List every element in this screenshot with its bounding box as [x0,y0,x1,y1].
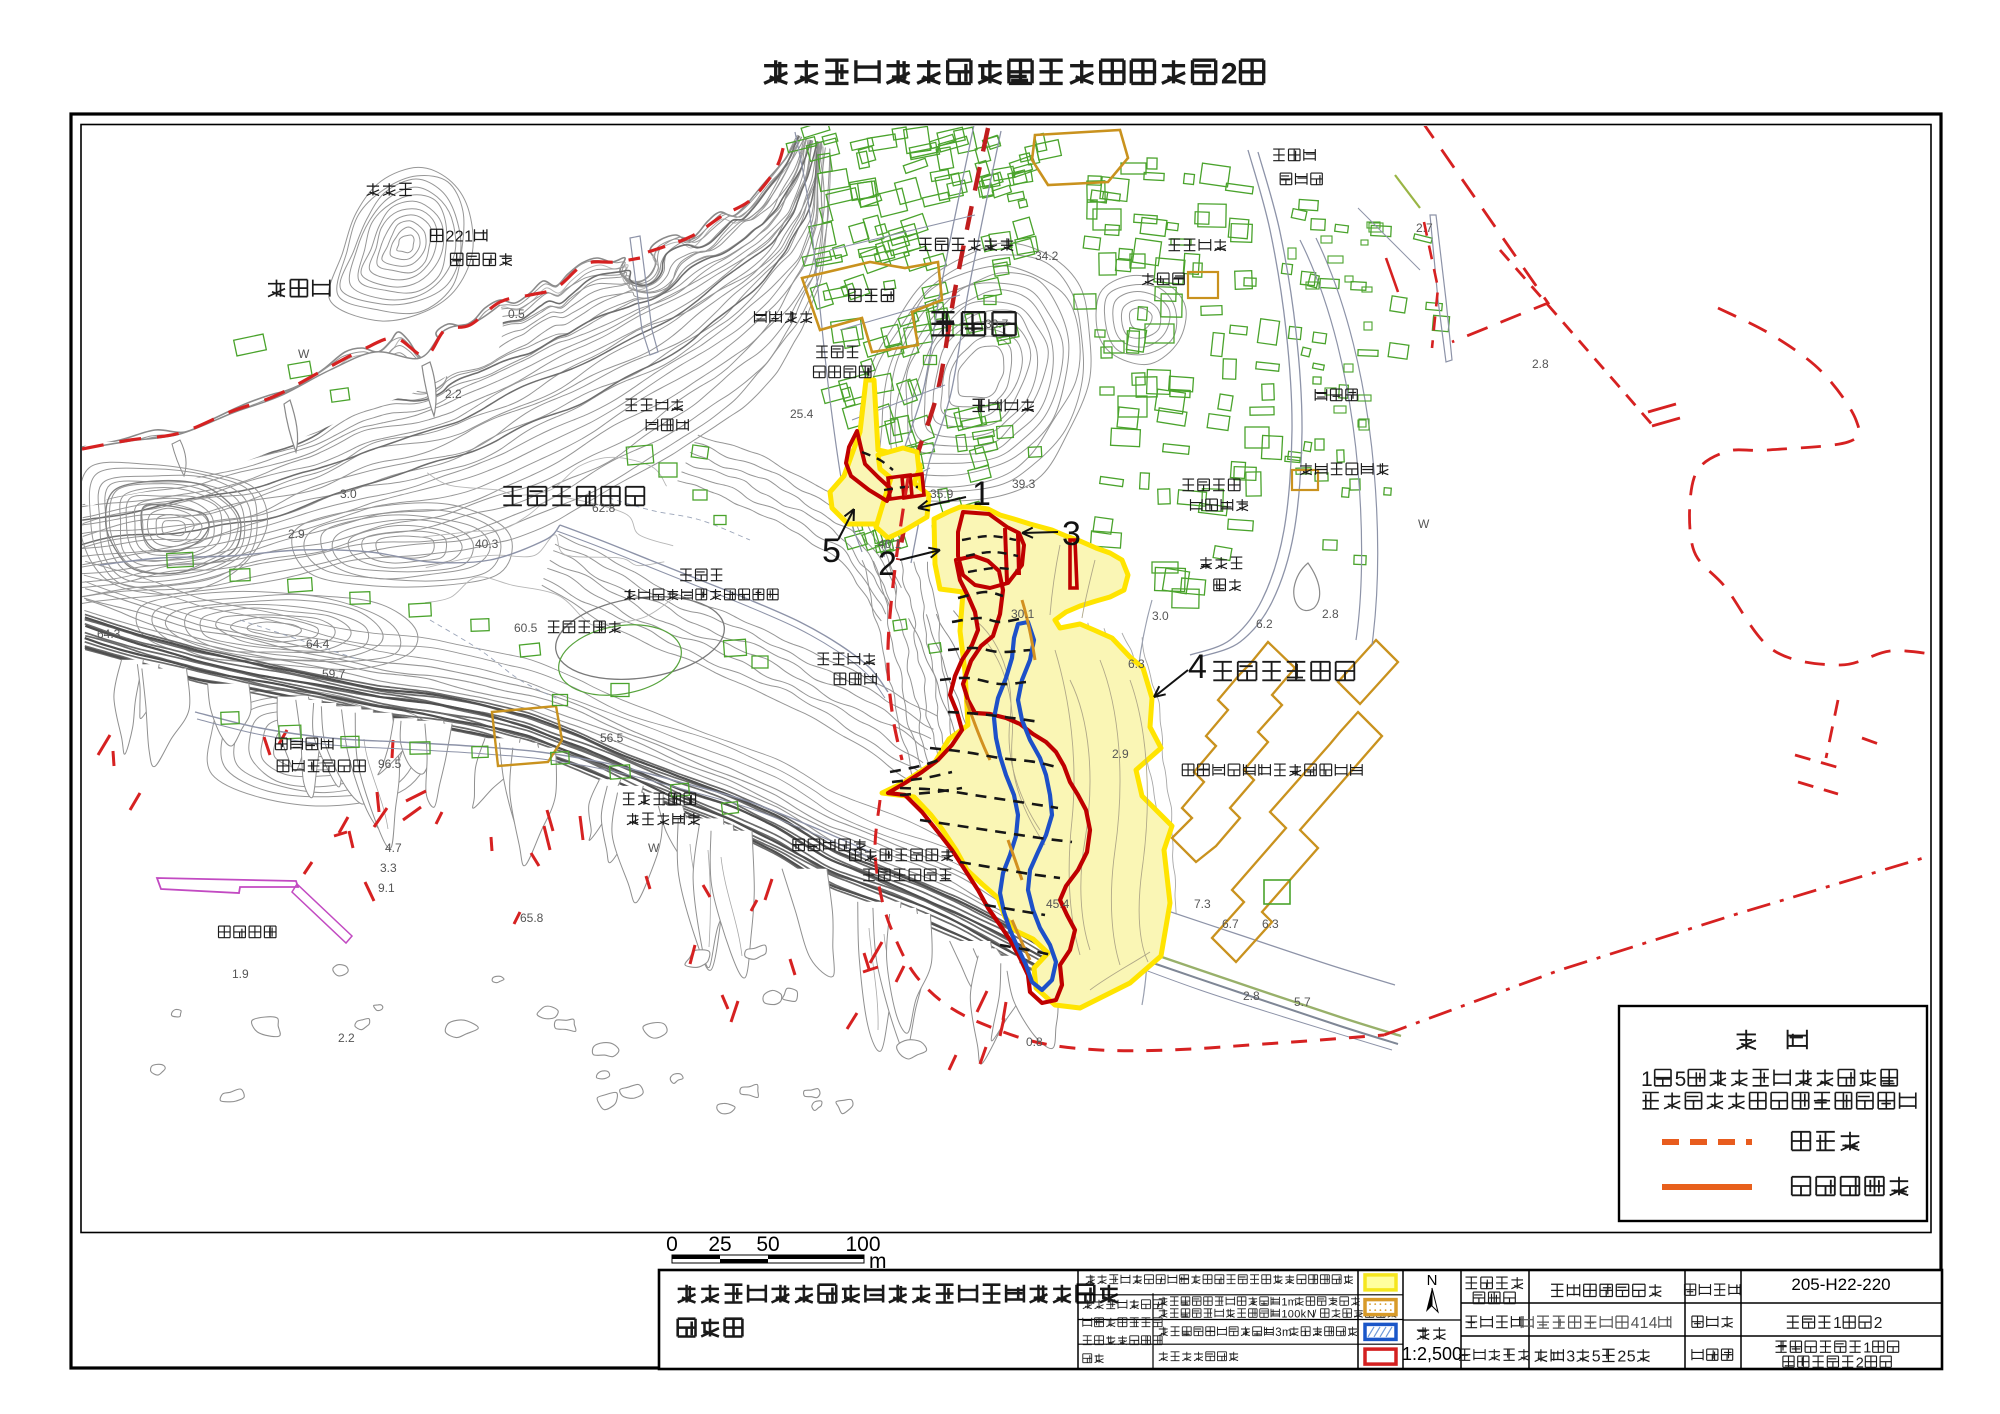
svg-text:6.3: 6.3 [1128,657,1145,671]
svg-text:6.7: 6.7 [1222,917,1239,931]
svg-text:3.0: 3.0 [1152,609,1169,623]
svg-text:0: 0 [1294,1308,1300,1320]
svg-text:2.9: 2.9 [1112,747,1129,761]
svg-text:64.3: 64.3 [97,627,121,641]
svg-text:5: 5 [1627,1349,1636,1366]
svg-text:1.9: 1.9 [232,967,249,981]
svg-text:2: 2 [446,229,455,246]
svg-text:205-H22-220: 205-H22-220 [1791,1275,1890,1294]
svg-text:W: W [298,347,310,361]
svg-text:2.8: 2.8 [1243,989,1260,1003]
svg-text:50: 50 [756,1233,779,1256]
svg-text:0.8: 0.8 [1026,1035,1043,1049]
svg-text:40.1: 40.1 [878,537,902,551]
svg-text:30.7: 30.7 [985,317,1009,331]
svg-text:64.4: 64.4 [306,637,330,651]
svg-text:4.7: 4.7 [385,841,402,855]
svg-text:1: 1 [464,229,473,246]
svg-text:2.9: 2.9 [288,527,305,541]
svg-text:4: 4 [1631,1315,1640,1332]
svg-text:1: 1 [972,475,991,513]
svg-text:N: N [1427,1272,1438,1289]
svg-text:60.5: 60.5 [514,621,538,635]
svg-text:1: 1 [1640,1315,1649,1332]
svg-text:1: 1 [1833,1315,1842,1332]
svg-text:1: 1 [1281,1296,1287,1308]
svg-text:34.2: 34.2 [1035,249,1059,263]
svg-text:62.8: 62.8 [592,501,616,515]
svg-text:3.3: 3.3 [380,861,397,875]
svg-text:96.5: 96.5 [378,757,402,771]
svg-text:5: 5 [1675,1068,1687,1091]
svg-text:40.3: 40.3 [475,537,499,551]
svg-text:k: k [1301,1308,1307,1320]
svg-text:3: 3 [1566,1349,1575,1366]
svg-text:2: 2 [1874,1315,1883,1332]
svg-text:45.4: 45.4 [1046,897,1070,911]
svg-text:4: 4 [1188,648,1207,686]
svg-text:1: 1 [1281,1308,1287,1320]
svg-text:5: 5 [1592,1349,1601,1366]
svg-text:6.2: 6.2 [1256,617,1273,631]
svg-text:2.2: 2.2 [445,387,462,401]
svg-text:m: m [1288,1296,1297,1308]
svg-text:2: 2 [1617,1349,1626,1366]
svg-text:0.5: 0.5 [508,307,525,321]
svg-text:56.5: 56.5 [600,731,624,745]
svg-text:7.3: 7.3 [1194,897,1211,911]
svg-text:W: W [1418,517,1430,531]
svg-text:3.0: 3.0 [340,487,357,501]
svg-text:2.2: 2.2 [338,1031,355,1045]
svg-text:1:2,500: 1:2,500 [1402,1344,1462,1364]
svg-text:2: 2 [1856,1355,1864,1371]
svg-text:2.7: 2.7 [1416,221,1433,235]
svg-text:0: 0 [666,1233,678,1256]
svg-text:6.3: 6.3 [1262,917,1279,931]
svg-text:25.4: 25.4 [790,407,814,421]
svg-text:5.7: 5.7 [1294,995,1311,1009]
svg-text:35.9: 35.9 [930,487,954,501]
svg-text:9.1: 9.1 [378,881,395,895]
svg-text:30.1: 30.1 [1011,607,1035,621]
svg-text:1: 1 [1863,1340,1871,1356]
svg-text:2.8: 2.8 [1322,607,1339,621]
svg-text:4: 4 [1649,1315,1658,1332]
svg-text:1: 1 [1641,1068,1653,1091]
svg-text:59.7: 59.7 [322,667,346,681]
svg-text:3: 3 [1275,1327,1281,1339]
svg-text:39.3: 39.3 [1012,477,1036,491]
svg-text:65.8: 65.8 [520,911,544,925]
svg-text:2.8: 2.8 [1532,357,1549,371]
svg-text:2: 2 [1221,58,1238,91]
svg-text:3: 3 [1062,515,1081,553]
svg-text:25: 25 [708,1233,731,1256]
svg-text:2: 2 [455,229,464,246]
svg-text:0: 0 [1288,1308,1294,1320]
svg-text:W: W [648,841,660,855]
